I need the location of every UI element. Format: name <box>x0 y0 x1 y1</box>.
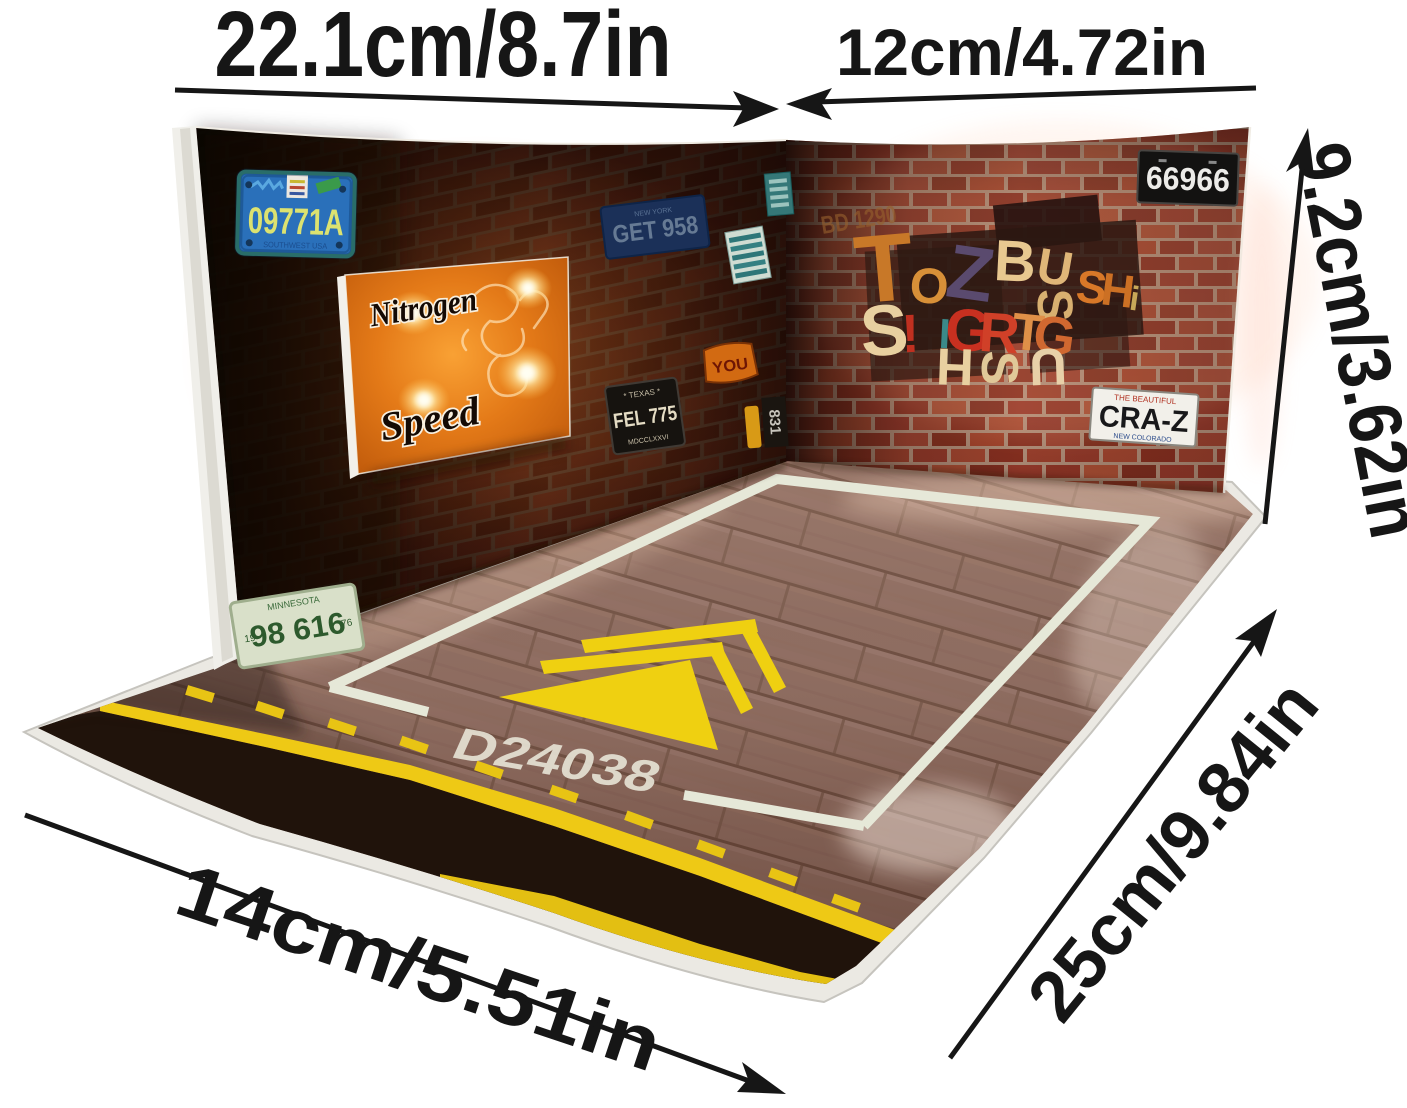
svg-text:09771A: 09771A <box>247 200 344 243</box>
svg-text:19: 19 <box>244 633 257 646</box>
svg-text:CRA-Z: CRA-Z <box>1098 400 1190 439</box>
svg-text:S: S <box>969 350 1028 387</box>
svg-text:SOUTHWEST USA: SOUTHWEST USA <box>263 240 328 251</box>
svg-text:22.1cm/8.7in: 22.1cm/8.7in <box>215 0 672 96</box>
svg-text:831: 831 <box>765 409 784 435</box>
svg-text:B: B <box>992 228 1037 295</box>
svg-text:66966: 66966 <box>1145 160 1230 199</box>
svg-text:U: U <box>1028 336 1068 395</box>
svg-text:76: 76 <box>340 617 353 630</box>
svg-text:12cm/4.72in: 12cm/4.72in <box>836 15 1208 89</box>
svg-text:!: ! <box>900 304 920 365</box>
svg-text:H: H <box>935 336 975 395</box>
